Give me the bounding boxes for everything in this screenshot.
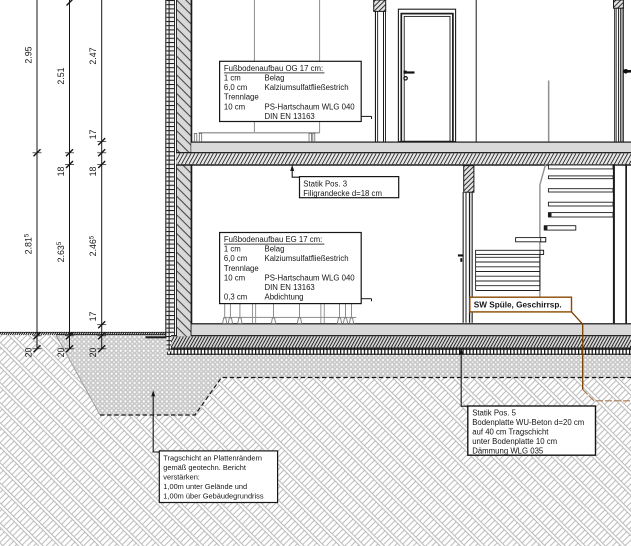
svg-text:Kalziumsulfatfließestrich: Kalziumsulfatfließestrich: [265, 83, 349, 92]
svg-text:Statik Pos. 5: Statik Pos. 5: [472, 408, 516, 417]
svg-text:2.47: 2.47: [88, 47, 98, 64]
svg-text:Tragschicht an Plattenrändern: Tragschicht an Plattenrändern: [163, 453, 262, 462]
svg-text:0,3 cm: 0,3 cm: [224, 293, 247, 302]
svg-text:20: 20: [88, 348, 98, 358]
svg-text:Bodenplatte WU-Beton d=20 cm: Bodenplatte WU-Beton d=20 cm: [472, 418, 584, 427]
svg-text:10 cm: 10 cm: [224, 102, 245, 111]
svg-text:Filigrandecke d=18 cm: Filigrandecke d=18 cm: [303, 189, 382, 198]
svg-text:1 cm: 1 cm: [224, 73, 241, 82]
svg-text:Trennlage: Trennlage: [224, 93, 259, 102]
svg-text:Fußbodenaufbau EG 17 cm:: Fußbodenaufbau EG 17 cm:: [224, 235, 322, 244]
svg-text:6,0 cm: 6,0 cm: [224, 83, 247, 92]
svg-text:1,00m über Gebäudegrundriss: 1,00m über Gebäudegrundriss: [163, 491, 264, 500]
svg-text:verstärken:: verstärken:: [163, 472, 200, 481]
svg-text:1,00m unter Gelände und: 1,00m unter Gelände und: [163, 482, 247, 491]
svg-text:17: 17: [88, 312, 98, 322]
svg-text:18: 18: [56, 167, 66, 177]
svg-text:20: 20: [56, 348, 66, 358]
svg-text:auf 40 cm Tragschicht: auf 40 cm Tragschicht: [472, 427, 549, 436]
svg-text:1 cm: 1 cm: [224, 245, 241, 254]
svg-text:Fußbodenaufbau OG 17 cm:: Fußbodenaufbau OG 17 cm:: [224, 64, 323, 73]
svg-text:18: 18: [88, 167, 98, 177]
svg-text:PS-Hartschaum WLG 040: PS-Hartschaum WLG 040: [265, 102, 356, 111]
svg-text:Belag: Belag: [265, 245, 285, 254]
svg-text:PS-Hartschaum WLG 040: PS-Hartschaum WLG 040: [265, 273, 356, 282]
svg-text:Belag: Belag: [265, 73, 285, 82]
svg-text:Kalziumsulfatfließestrich: Kalziumsulfatfließestrich: [265, 254, 349, 263]
svg-text:DIN EN 13163: DIN EN 13163: [265, 112, 315, 121]
svg-text:DIN EN 13163: DIN EN 13163: [265, 283, 315, 292]
svg-text:20: 20: [24, 348, 34, 358]
svg-text:17: 17: [88, 130, 98, 140]
svg-text:gemäß geotechn. Bericht: gemäß geotechn. Bericht: [163, 463, 246, 472]
svg-text:Statik Pos. 3: Statik Pos. 3: [303, 180, 347, 189]
svg-text:2.51: 2.51: [56, 67, 66, 84]
svg-text:Abdichtung: Abdichtung: [265, 293, 304, 302]
svg-text:SW Spüle, Geschirrsp.: SW Spüle, Geschirrsp.: [474, 300, 562, 309]
svg-text:Trennlage: Trennlage: [224, 264, 259, 273]
svg-text:10 cm: 10 cm: [224, 273, 245, 282]
svg-text:2.95: 2.95: [24, 46, 34, 63]
svg-text:6,0 cm: 6,0 cm: [224, 254, 247, 263]
svg-text:Dämmung WLG 035: Dämmung WLG 035: [472, 446, 544, 455]
svg-text:unter Bodenplatte 10 cm: unter Bodenplatte 10 cm: [472, 437, 557, 446]
